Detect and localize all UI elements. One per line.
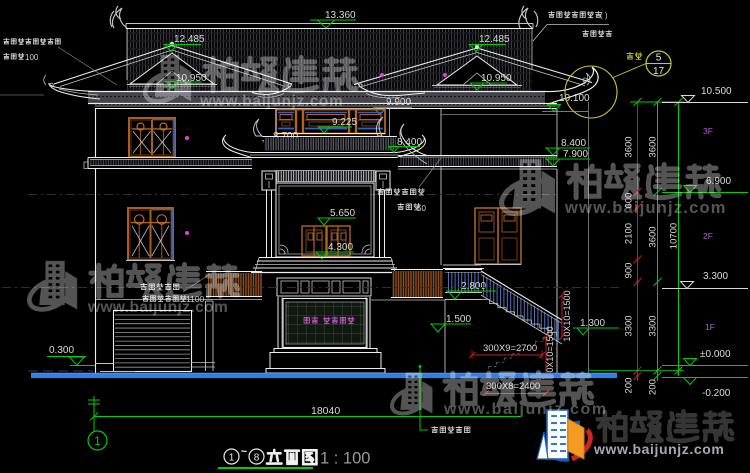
svg-text:100: 100 bbox=[25, 53, 39, 62]
svg-text:±0.000: ±0.000 bbox=[700, 349, 731, 360]
svg-text:1: 1 bbox=[94, 434, 101, 448]
svg-text:200: 200 bbox=[624, 378, 635, 394]
svg-text:1: 1 bbox=[229, 453, 235, 464]
svg-text:1.500: 1.500 bbox=[446, 314, 471, 325]
svg-text:12.485: 12.485 bbox=[479, 34, 510, 45]
svg-text:3600: 3600 bbox=[648, 136, 659, 157]
svg-text:www.baijunjz.com: www.baijunjz.com bbox=[593, 441, 724, 457]
svg-text:18040: 18040 bbox=[311, 405, 340, 417]
svg-text:www.baijunjz.com: www.baijunjz.com bbox=[564, 199, 727, 217]
svg-text:5: 5 bbox=[656, 53, 662, 64]
svg-text:200: 200 bbox=[648, 379, 659, 395]
svg-text:8: 8 bbox=[254, 453, 260, 464]
svg-text:10.500: 10.500 bbox=[701, 86, 732, 97]
svg-text:1.300: 1.300 bbox=[580, 318, 605, 329]
svg-text:2.800: 2.800 bbox=[461, 281, 486, 292]
svg-text:7.900: 7.900 bbox=[563, 149, 588, 160]
svg-text:10X10=1500: 10X10=1500 bbox=[562, 290, 572, 341]
svg-text:3300: 3300 bbox=[624, 315, 635, 336]
svg-text:300X9=2700: 300X9=2700 bbox=[483, 343, 537, 354]
svg-text:10700: 10700 bbox=[669, 223, 680, 249]
svg-text:10.950: 10.950 bbox=[481, 73, 512, 84]
svg-text:4.300: 4.300 bbox=[328, 242, 353, 253]
svg-text:2F: 2F bbox=[703, 231, 713, 241]
svg-text:www.baijunjz.com: www.baijunjz.com bbox=[199, 93, 343, 110]
svg-text:2100: 2100 bbox=[624, 223, 635, 244]
svg-text:13.360: 13.360 bbox=[325, 10, 356, 21]
svg-text:12.485: 12.485 bbox=[174, 34, 205, 45]
svg-text:www.baijunjz.com: www.baijunjz.com bbox=[443, 401, 608, 418]
svg-text:( ): ( ) bbox=[600, 11, 608, 20]
svg-text:3F: 3F bbox=[703, 126, 713, 136]
svg-text:0.300: 0.300 bbox=[49, 345, 74, 356]
svg-text:3300: 3300 bbox=[648, 315, 659, 336]
svg-text:3600: 3600 bbox=[624, 136, 635, 157]
svg-text:900: 900 bbox=[624, 263, 635, 279]
svg-text:3600: 3600 bbox=[648, 226, 659, 247]
svg-text:3.300: 3.300 bbox=[703, 271, 728, 282]
svg-text:10.100: 10.100 bbox=[559, 93, 590, 104]
svg-text:www.baijunjz.com: www.baijunjz.com bbox=[87, 299, 228, 316]
svg-text:50: 50 bbox=[417, 204, 426, 213]
svg-text:9.900: 9.900 bbox=[386, 97, 411, 108]
svg-text:~: ~ bbox=[241, 446, 248, 458]
svg-text:1 : 100: 1 : 100 bbox=[320, 450, 370, 468]
svg-text:9.225: 9.225 bbox=[332, 117, 357, 128]
svg-text:8.400: 8.400 bbox=[561, 138, 586, 149]
svg-text:1F: 1F bbox=[705, 322, 715, 332]
svg-text:17: 17 bbox=[653, 66, 665, 77]
svg-text:-0.200: -0.200 bbox=[702, 388, 731, 399]
svg-text:5.650: 5.650 bbox=[330, 208, 355, 219]
